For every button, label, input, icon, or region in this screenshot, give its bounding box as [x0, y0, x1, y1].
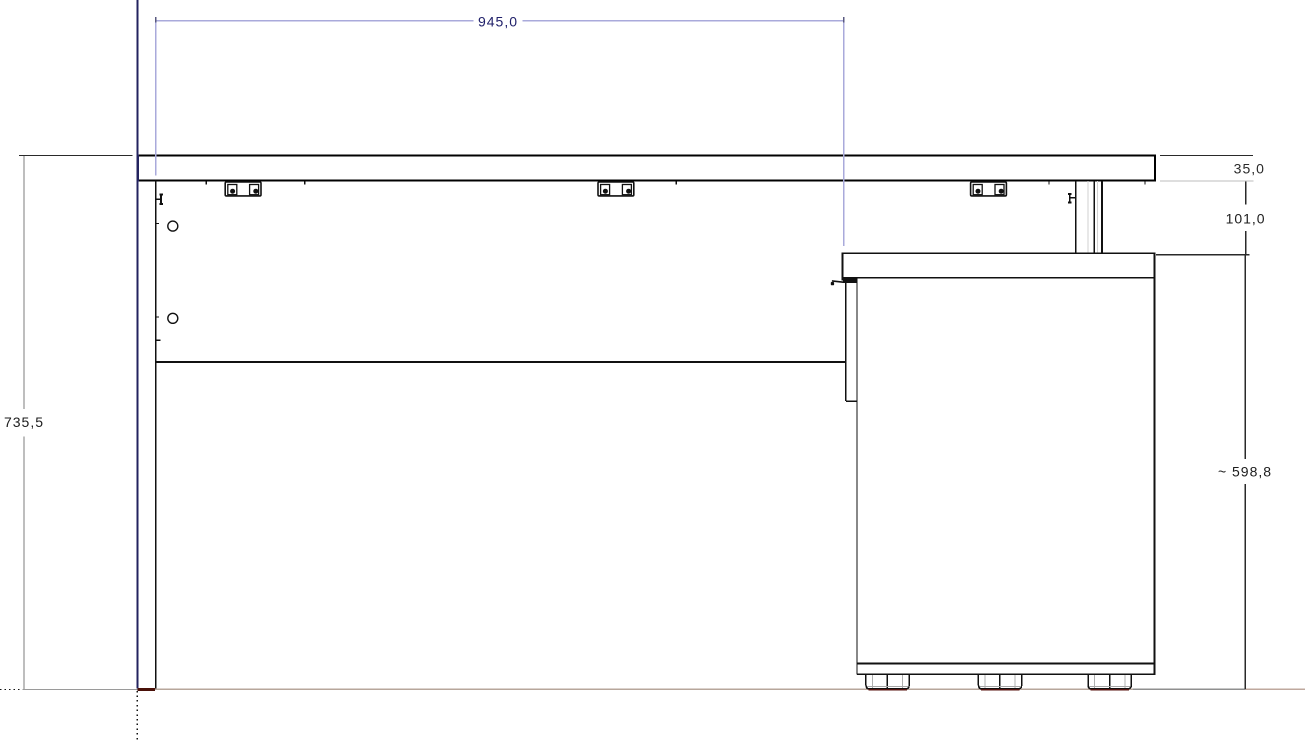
- svg-text:35,0: 35,0: [1234, 161, 1265, 177]
- svg-text:735,5: 735,5: [4, 414, 44, 430]
- svg-text:101,0: 101,0: [1226, 210, 1266, 226]
- svg-text:945,0: 945,0: [478, 14, 518, 30]
- svg-text:~ 598,8: ~ 598,8: [1218, 464, 1272, 480]
